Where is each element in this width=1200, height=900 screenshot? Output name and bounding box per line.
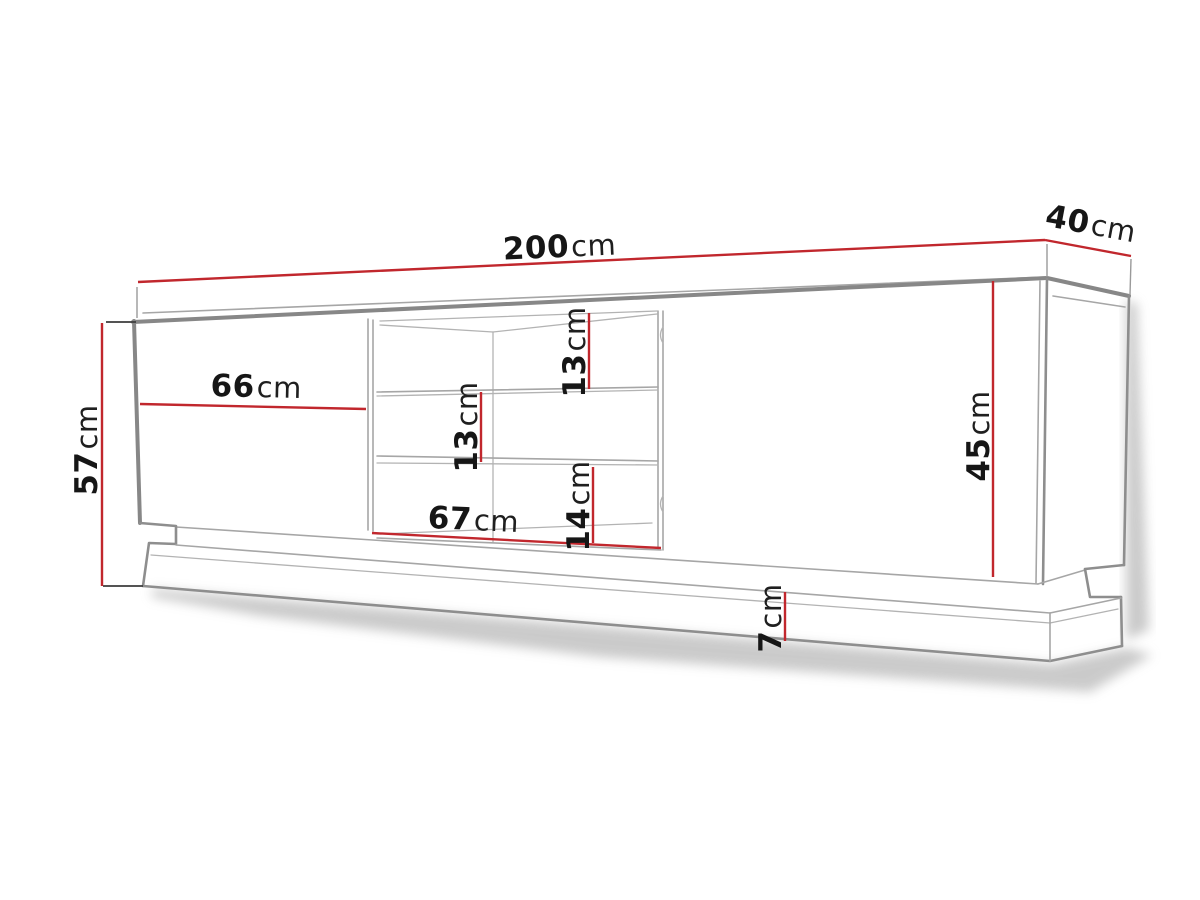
left-edge [134, 321, 140, 523]
top-back-edge [143, 277, 1045, 313]
dim-label-niche-width: 67cm [427, 500, 520, 540]
dim-label-front-height: 45cm [961, 390, 997, 481]
front-right-corner-edge [1043, 279, 1047, 584]
shadow-right [1126, 300, 1149, 640]
drop-shadow [152, 300, 1152, 692]
right-panel-inner-line [1053, 296, 1125, 307]
dim-label-total-height: 57cm [69, 404, 105, 495]
dim-label-total-width: 200cm [502, 226, 617, 267]
left-notch [140, 523, 176, 586]
dimension-labels: 200cm 40cm 57cm 66cm 13cm 13cm 14cm 67cm… [69, 198, 1139, 652]
niche-ceiling-back-edge [380, 311, 657, 321]
shelf-lower-back-edge [377, 463, 658, 465]
body-bottom-right-edge [1038, 570, 1085, 584]
dim-label-niche-middle-height: 13cm [449, 381, 485, 472]
right-panel-top-edge [1047, 278, 1129, 296]
dim-label-plinth-height: 7cm [753, 583, 789, 652]
shelf-lower-front-edge [377, 456, 658, 461]
tv-stand-diagram: 200cm 40cm 57cm 66cm 13cm 13cm 14cm 67cm… [0, 0, 1200, 900]
dim-label-left-door-width: 66cm [210, 368, 302, 406]
dim-label-niche-top-height: 13cm [557, 306, 593, 397]
front-right-door-edge [1036, 281, 1040, 583]
shadow-bottom [152, 589, 1152, 692]
right-notch [1085, 565, 1124, 597]
plinth-back-edge [1121, 597, 1122, 646]
ext-depth-right [1130, 259, 1131, 295]
dim-label-niche-bottom-height: 14cm [561, 460, 597, 551]
technical-drawing-canvas: 200cm 40cm 57cm 66cm 13cm 13cm 14cm 67cm… [0, 0, 1200, 900]
niche-ceiling-front-edge-left [380, 325, 493, 332]
